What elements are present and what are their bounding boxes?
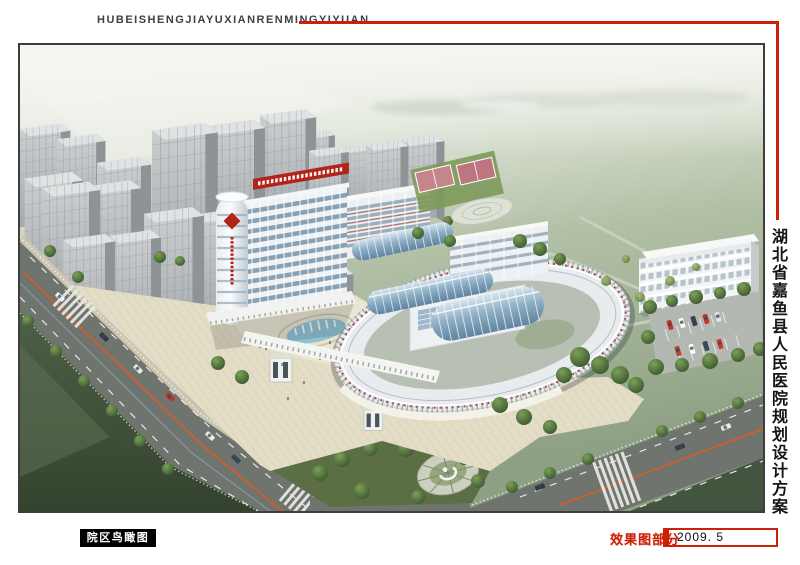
date-box: 2009. 5 — [663, 528, 778, 547]
view-caption: 院区鸟瞰图 — [80, 529, 156, 547]
presentation-board: HUBEISHENGJIAYUXIANRENMINGYIYUAN 湖北省嘉鱼县人… — [0, 0, 800, 565]
side-red-rule — [776, 21, 779, 220]
date-text: 2009. 5 — [677, 530, 724, 544]
aerial-rendering — [20, 45, 763, 511]
vertical-project-title: 湖北省嘉鱼县人民医院规划设计方案 — [766, 228, 790, 528]
tower-cylinder — [216, 192, 248, 325]
pinyin-title: HUBEISHENGJIAYUXIANRENMINGYIYUAN — [97, 14, 370, 26]
top-red-rule — [299, 21, 778, 24]
aerial-rendering-frame — [18, 43, 765, 513]
